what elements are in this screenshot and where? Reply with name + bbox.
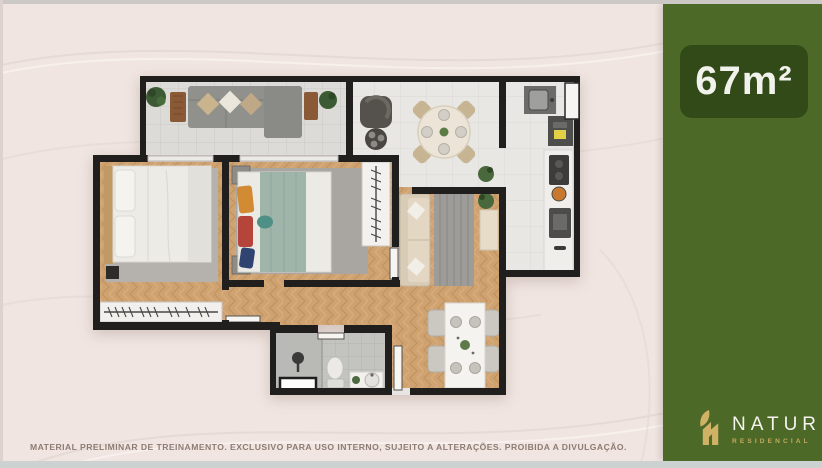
headboard (104, 166, 113, 264)
door-leaf (318, 333, 344, 339)
chair (484, 346, 499, 372)
logo-brand-text: NATUR (732, 415, 821, 434)
rug (434, 192, 474, 286)
double-bed (237, 172, 331, 272)
glass-doors (148, 156, 338, 161)
bottom-edge (0, 461, 822, 468)
pan (552, 187, 566, 201)
beige-sofa (400, 194, 430, 286)
side-bench (304, 92, 318, 120)
logo-tagline-text: RESIDENCIAL (732, 438, 821, 445)
chair (484, 310, 499, 336)
nightstand (106, 266, 119, 279)
natur-logo-icon (697, 409, 723, 446)
kitchen-window (565, 83, 579, 119)
round-dining-table (411, 99, 478, 166)
chair (428, 310, 446, 336)
top-edge (0, 0, 822, 4)
double-bed (113, 166, 211, 262)
disclaimer-text: MATERIAL PRELIMINAR DE TREINAMENTO. EXCL… (30, 442, 640, 452)
closet (362, 162, 390, 246)
entry-door-leaf (394, 346, 402, 390)
training-slide: 67m² NATUR RESIDENCIAL MATERIAL PRELIMIN… (0, 0, 822, 468)
chair (428, 346, 446, 372)
vanity (350, 372, 383, 388)
floor-plan (88, 70, 584, 400)
cooktop (549, 155, 569, 185)
door-leaf (390, 248, 398, 279)
area-badge: 67m² (680, 45, 808, 118)
door-leaf (226, 316, 260, 322)
natur-logo: NATUR RESIDENCIAL (697, 409, 821, 446)
wardrobe (100, 302, 222, 322)
left-edge (0, 0, 3, 468)
sideboard (480, 210, 498, 250)
sidebar: 67m² NATUR RESIDENCIAL (663, 4, 822, 461)
toilet (327, 357, 344, 388)
